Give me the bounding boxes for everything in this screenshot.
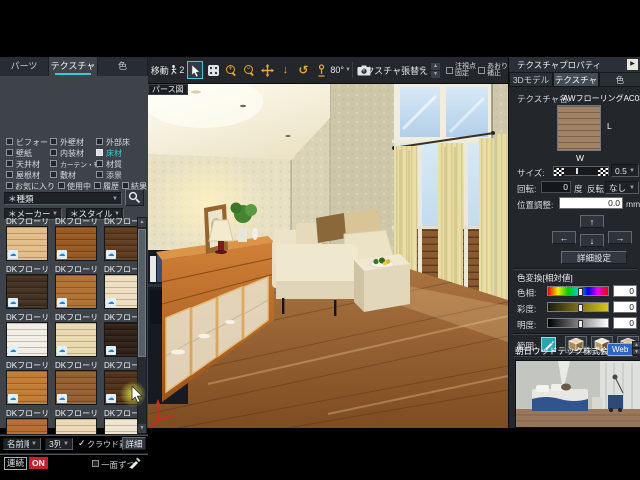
texture-palette-panel: パーツ テクスチャ 色 ビフォー 外壁材 外部床 壁紙 内装材 床材 天井材 カ… <box>0 57 149 428</box>
category-before[interactable]: ビフォー <box>16 137 48 148</box>
search-icon <box>128 191 141 204</box>
walking-person-icon <box>170 64 178 76</box>
size-slider[interactable] <box>553 166 609 176</box>
texture-swatch[interactable]: ☁ <box>55 418 97 434</box>
texture-swatch-label: DKフローリン... <box>6 313 50 322</box>
saturation-input[interactable] <box>613 301 637 313</box>
pan-icon <box>261 64 274 77</box>
texture-swatch-label: DKフローリン... <box>6 217 50 226</box>
category-interior-material[interactable]: 内装材 <box>60 148 84 159</box>
texture-swatch[interactable]: ☁ <box>55 226 97 261</box>
3d-viewport[interactable]: パース図 <box>148 84 508 428</box>
texture-swatch-label: DKフローリン... <box>6 361 50 370</box>
cloud-icon: ☁ <box>8 346 18 355</box>
category-paving[interactable]: 敷材 <box>60 170 76 181</box>
move-down-button[interactable]: ↓ <box>277 61 293 79</box>
category-ceiling[interactable]: 天井材 <box>16 159 40 170</box>
panel-title: テクスチャプロパティ <box>517 59 601 71</box>
checkbox-exterior-wall[interactable] <box>50 138 57 145</box>
category-exterior-wall[interactable]: 外壁材 <box>60 137 84 148</box>
cloud-icon: ☁ <box>57 250 67 259</box>
texture-swatch-cell: DKフローリン... ☁ <box>6 409 50 434</box>
preview-w-label: W <box>576 153 584 163</box>
select-tool-button[interactable] <box>187 61 203 79</box>
nudge-up-button[interactable]: ↑ <box>580 215 604 228</box>
texture-swatch[interactable]: ☁ <box>6 370 48 405</box>
rotate-icon: ↺ <box>298 63 308 77</box>
continuous-label: 連続 <box>4 457 27 470</box>
tilt-correction-checkbox-group[interactable]: あおり補正 <box>478 63 508 77</box>
cloud-icon: ☁ <box>57 394 67 403</box>
rotate-view-button[interactable]: ↺ <box>295 61 311 79</box>
kind-select[interactable]: ＊種類▼ <box>4 192 122 205</box>
checkbox-results[interactable] <box>122 182 129 189</box>
category-wallpaper[interactable]: 壁紙 <box>16 148 32 159</box>
columns-select[interactable]: 3列▼ <box>45 438 73 450</box>
continuous-on-badge[interactable]: ON <box>29 457 48 469</box>
texture-swatch-label: DKフローリン... <box>55 217 99 226</box>
texture-swatch-cell: DKフローリン... ☁ <box>6 217 50 262</box>
arrow-right-icon: → <box>616 233 625 243</box>
arrow-up-icon: ↑ <box>590 217 595 227</box>
cloud-icon: ☁ <box>57 346 67 355</box>
texture-swatch[interactable]: ☁ <box>55 274 97 309</box>
search-button[interactable] <box>125 189 144 206</box>
checkbox-interior-material[interactable] <box>50 149 57 156</box>
view-angle-button[interactable]: 80° ▼ <box>331 61 349 79</box>
detail-button[interactable]: 詳細 <box>122 437 146 450</box>
filter-history[interactable]: 履歴 <box>103 181 119 192</box>
checkbox-ceiling[interactable] <box>6 160 13 167</box>
checkbox-entourage[interactable] <box>96 171 103 178</box>
texture-swatch-label: DKフローリン... <box>55 361 99 370</box>
eyedropper-button[interactable] <box>128 456 144 472</box>
cloud-icon: ☁ <box>106 250 116 259</box>
texture-swatch-cell: DKフローリン... ☁ <box>55 217 99 262</box>
nudge-right-button[interactable]: → <box>608 231 632 244</box>
zoom-out-icon: − <box>244 65 255 76</box>
category-exterior-floor[interactable]: 外部床 <box>106 137 130 148</box>
texture-swatch[interactable]: ☁ <box>6 322 48 357</box>
fix-gaze-checkbox-group[interactable]: 注視点固定 <box>446 63 476 77</box>
size-select[interactable]: 0.5倍▼ <box>611 164 639 177</box>
scroll-up-button[interactable]: ▲ <box>138 218 146 227</box>
toolbar-stepper[interactable]: ▲ ▼ <box>431 63 440 78</box>
texture-swatch-cell: DKフローリン... ☁ <box>55 361 99 406</box>
vendor-step-up[interactable]: ▲ <box>632 341 640 348</box>
filter-in-use[interactable]: 使用中 <box>67 181 91 192</box>
camera-height-icon <box>316 64 327 77</box>
tab-3d-model[interactable]: 3Dモデル <box>509 72 553 87</box>
texture-swatch[interactable]: ☁ <box>6 274 48 309</box>
3d-viewport-render <box>148 84 508 428</box>
texture-swatch-label: DKフローリン... <box>6 409 50 418</box>
cloud-icon: ☁ <box>8 250 18 259</box>
chevron-down-icon: ▼ <box>31 441 37 447</box>
flip-label: 反転 <box>587 183 604 195</box>
texture-swatch-label: DKフローリン... <box>55 265 99 274</box>
position-input[interactable] <box>559 197 623 209</box>
checkbox-paving[interactable] <box>50 171 57 178</box>
filter-favorites[interactable]: お気に入り <box>15 181 55 192</box>
walk-count: 2 <box>179 65 184 75</box>
position-label: 位置調整: <box>517 199 553 211</box>
nudge-down-button[interactable]: ↓ <box>580 234 604 247</box>
chevron-down-icon: ▼ <box>63 441 69 447</box>
scroll-down-button[interactable]: ▼ <box>138 424 146 433</box>
category-material[interactable]: 材質 <box>106 159 122 170</box>
tab-texture[interactable]: テクスチャ <box>49 57 98 76</box>
eyedropper-icon <box>128 456 142 470</box>
texture-swatch[interactable]: ☁ <box>6 418 48 434</box>
zoom-out-button[interactable]: − <box>241 61 257 79</box>
cloud-material-check-icon[interactable]: ✓ <box>78 438 86 449</box>
saturation-label: 彩度: <box>517 303 536 315</box>
vendor-step-down[interactable]: ▼ <box>632 348 640 355</box>
one-face-checkbox[interactable] <box>92 460 99 467</box>
chevron-down-icon: ▼ <box>345 67 351 73</box>
perspective-view-label: パース図 <box>148 84 188 95</box>
texture-swatch-cell: DKフローリン... ☁ <box>6 313 50 358</box>
rotation-label: 回転: <box>517 183 536 195</box>
checkbox-wallpaper[interactable] <box>6 149 13 156</box>
texture-swatch[interactable]: ☁ <box>55 370 97 405</box>
texture-swatch-label: DKフローリン... <box>55 313 99 322</box>
zoom-in-button[interactable]: + <box>223 61 239 79</box>
cursor-arrow-icon <box>190 64 201 77</box>
texture-swatch-label: DKフローリン... <box>55 409 99 418</box>
fix-gaze-checkbox[interactable] <box>446 67 453 74</box>
checkbox-history[interactable] <box>94 182 101 189</box>
advanced-settings-button[interactable]: 詳細設定 <box>561 251 627 264</box>
tab-color-props[interactable]: 色 <box>599 72 640 87</box>
hue-input[interactable] <box>613 285 637 297</box>
hue-label: 色相: <box>517 287 536 299</box>
texture-swatch-cell: DKフローリン... ☁ <box>55 409 99 434</box>
sort-order-select[interactable]: 名前順▼ <box>3 438 41 450</box>
cloud-icon: ☁ <box>8 298 18 307</box>
panel-expand-button[interactable]: ▶ <box>627 59 638 70</box>
texture-swatch[interactable]: ☁ <box>55 322 97 357</box>
texture-name-value: AWフローリングAC03 <box>563 93 640 104</box>
cloud-icon: ☁ <box>57 298 67 307</box>
vendor-ad-thumbnail[interactable] <box>515 360 640 428</box>
cloud-icon: ☁ <box>106 346 116 355</box>
tilt-correction-checkbox[interactable] <box>478 67 485 74</box>
size-label: サイズ: <box>517 167 545 179</box>
hue-slider[interactable] <box>547 286 609 296</box>
checkbox-favorites[interactable] <box>6 182 13 189</box>
scrollbar-thumb[interactable] <box>138 229 146 357</box>
zoom-in-icon: + <box>226 65 237 76</box>
color-conversion-title: 色変換[相対値] <box>517 272 573 284</box>
walk-mode-button[interactable] <box>205 61 221 79</box>
brightness-input[interactable] <box>613 317 637 329</box>
brightness-slider[interactable] <box>547 318 609 328</box>
step-up-icon[interactable]: ▲ <box>431 63 440 70</box>
chevron-down-icon: ▼ <box>629 168 635 174</box>
nudge-left-button[interactable]: ← <box>552 231 576 244</box>
vendor-name[interactable]: 朝日ウッドテック株式会社 <box>515 345 617 357</box>
checkbox-before[interactable] <box>6 138 13 145</box>
texture-swatch-label: DKフローリン... <box>6 265 50 274</box>
category-curtain[interactable]: カーテン・布 <box>60 160 100 170</box>
chevron-down-icon: ▼ <box>418 67 424 73</box>
checkbox-in-use[interactable] <box>58 182 65 189</box>
view-move-button[interactable]: 移動 <box>151 61 167 79</box>
chevron-down-icon: ▼ <box>112 196 118 202</box>
texture-swatch-cell: DKフローリン... ☁ <box>6 361 50 406</box>
walkthrough-button[interactable]: 2 <box>169 61 185 79</box>
degree-label: 度 <box>574 183 583 195</box>
texture-swatch-cell: DKフローリン... ☁ <box>55 313 99 358</box>
down-arrow-icon: ↓ <box>283 64 289 76</box>
texture-properties-panel: テクスチャプロパティ ▶ 3Dモデル テクスチャ 色 テクスチャ名: AWフロー… <box>508 57 640 428</box>
mouse-cursor <box>131 386 144 403</box>
texture-swatch-grid: DKフローリン... ☁ DKフローリン... ☁ DKフローリン... ☁ <box>0 217 142 434</box>
category-floor-material[interactable]: 床材 <box>106 148 122 159</box>
viewport-toolbar: 移動 2 + − <box>148 57 508 84</box>
view-angle-value: 80° <box>330 65 344 75</box>
rotation-input[interactable] <box>541 181 571 193</box>
tab-parts[interactable]: パーツ <box>0 57 49 76</box>
checkbox-curtain[interactable] <box>50 160 57 167</box>
panel-header: テクスチャプロパティ ▶ <box>509 57 640 72</box>
texture-swatch[interactable]: ☁ <box>6 226 48 261</box>
cloud-icon: ☁ <box>8 394 18 403</box>
application-window: パーツ テクスチャ 色 ビフォー 外壁材 外部床 壁紙 内装材 床材 天井材 カ… <box>0 57 640 428</box>
category-roof[interactable]: 屋根材 <box>16 170 40 181</box>
checkbox-exterior-floor[interactable] <box>96 138 103 145</box>
flip-select[interactable]: なし▼ <box>605 181 639 194</box>
step-down-icon[interactable]: ▼ <box>431 71 440 78</box>
texture-preview[interactable] <box>557 105 601 151</box>
dice-icon <box>207 64 220 77</box>
tab-texture-props[interactable]: テクスチャ <box>553 72 599 87</box>
bedroom-photo <box>516 361 640 427</box>
position-unit: mm <box>626 199 640 209</box>
arrow-down-icon: ↓ <box>590 236 595 246</box>
pan-button[interactable] <box>259 61 275 79</box>
camera-height-button[interactable] <box>313 61 329 79</box>
texture-swatch-cell: DKフローリン... ☁ <box>6 265 50 310</box>
texture-replace-button[interactable]: テクスチャ張替え <box>374 61 411 79</box>
checkbox-roof[interactable] <box>6 171 13 178</box>
tab-color[interactable]: 色 <box>98 57 148 76</box>
texture-swatch-cell: DKフローリン... ☁ <box>55 265 99 310</box>
checkbox-floor-material[interactable] <box>96 149 103 156</box>
web-link-badge[interactable]: Web <box>607 343 633 356</box>
category-entourage[interactable]: 添景 <box>106 170 122 181</box>
chevron-down-icon: ▼ <box>629 185 635 191</box>
saturation-slider[interactable] <box>547 302 609 312</box>
checkbox-material[interactable] <box>96 160 103 167</box>
preview-l-label: L <box>607 121 612 131</box>
arrow-left-icon: ← <box>560 233 569 243</box>
cloud-icon: ☁ <box>106 298 116 307</box>
brightness-label: 明度: <box>517 319 536 331</box>
cloud-icon: ☁ <box>106 394 116 403</box>
texture-replace-dropdown[interactable]: ▼ <box>413 61 429 79</box>
